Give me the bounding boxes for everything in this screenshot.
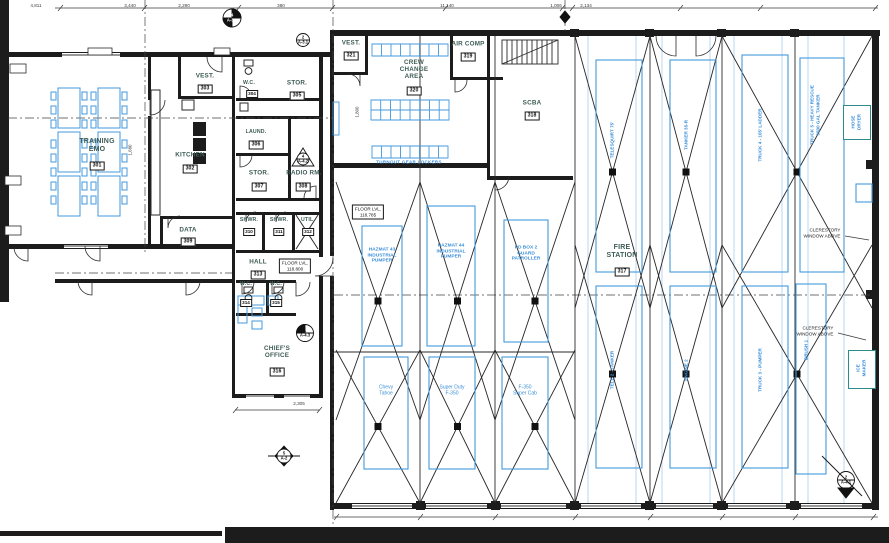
hose-dryer-box [843,105,871,140]
ice-maker-box [848,350,876,389]
floorplan-linework [0,0,889,543]
floorplan-canvas: TRAINING EMO 301 KITCHEN 302 VEST. 303 W… [0,0,889,543]
